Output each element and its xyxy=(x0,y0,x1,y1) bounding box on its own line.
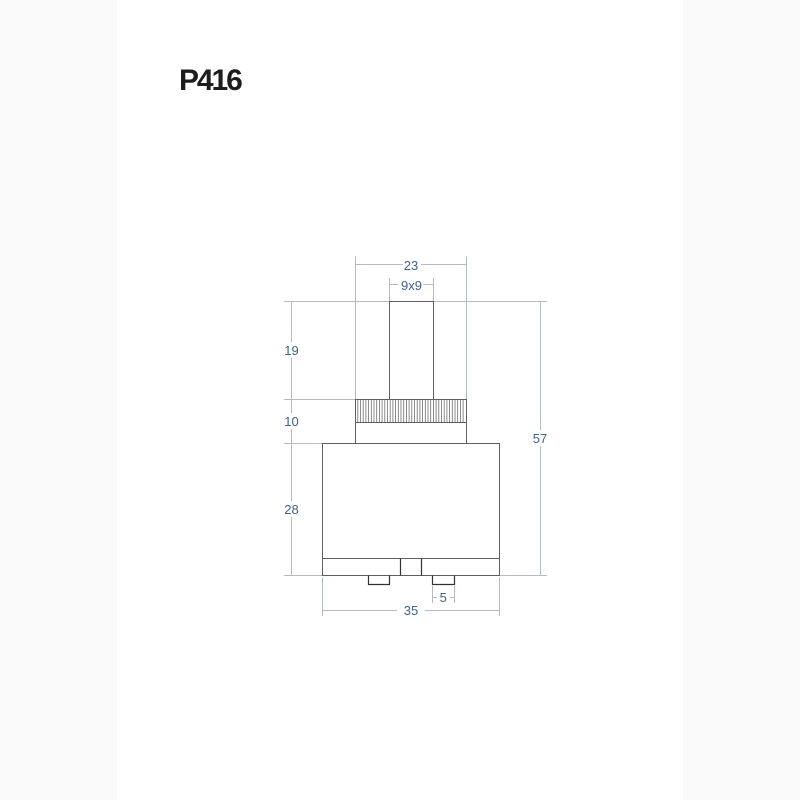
svg-text:23: 23 xyxy=(404,258,418,273)
svg-text:9x9: 9x9 xyxy=(401,278,422,293)
svg-text:19: 19 xyxy=(284,343,298,358)
svg-text:35: 35 xyxy=(404,603,418,618)
svg-text:57: 57 xyxy=(533,431,547,446)
svg-text:28: 28 xyxy=(284,502,298,517)
svg-text:5: 5 xyxy=(440,590,447,605)
svg-text:10: 10 xyxy=(284,414,298,429)
